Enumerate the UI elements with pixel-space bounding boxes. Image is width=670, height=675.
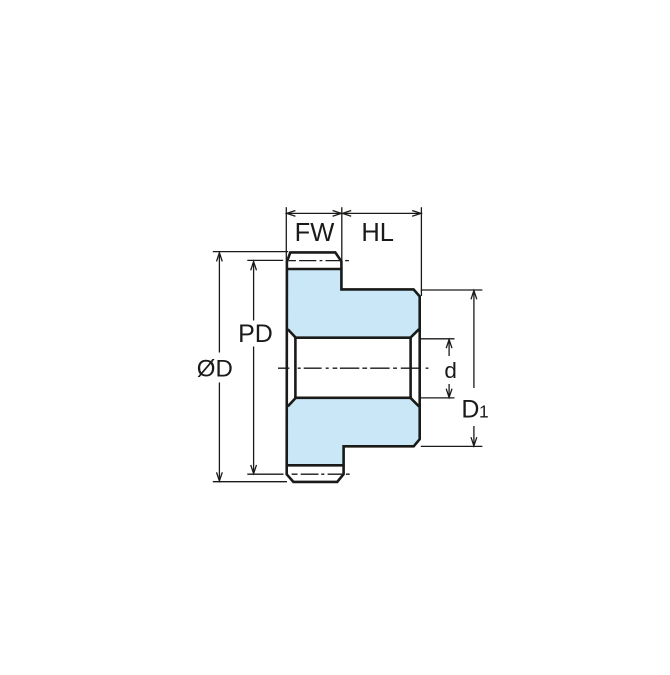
- svg-text:FW: FW: [295, 219, 335, 247]
- svg-text:HL: HL: [361, 219, 394, 247]
- svg-text:d: d: [444, 358, 457, 383]
- svg-text:PD: PD: [238, 320, 273, 348]
- svg-text:ØD: ØD: [197, 355, 233, 382]
